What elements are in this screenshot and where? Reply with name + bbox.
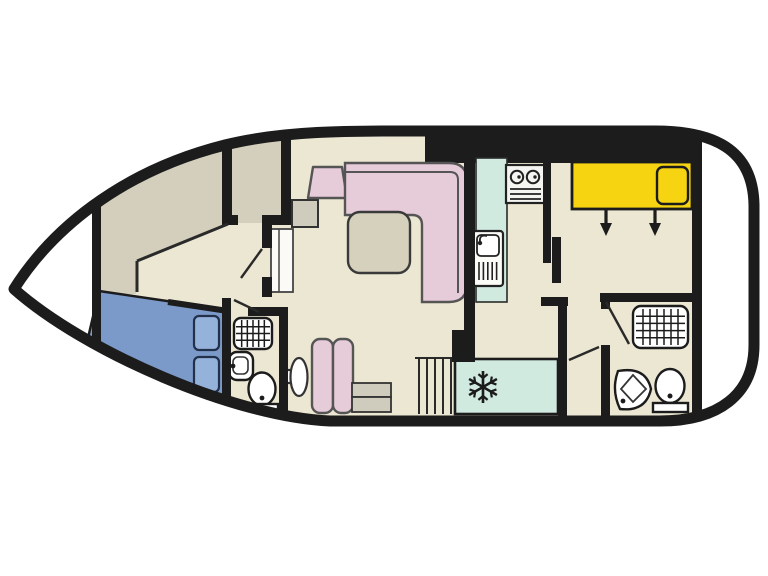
steps-icon <box>352 383 391 397</box>
door-jamb <box>552 237 561 283</box>
bulkhead-front <box>92 206 101 352</box>
fridge <box>455 359 558 414</box>
wall-segment <box>601 345 610 422</box>
wall-segment <box>279 307 288 420</box>
armchair <box>308 167 347 198</box>
wall-segment <box>452 330 465 362</box>
toilet-dot <box>668 394 673 399</box>
wall-segment <box>600 293 702 302</box>
wall-segment <box>222 215 238 225</box>
toilet-icon <box>249 373 276 406</box>
bench-seat <box>333 339 353 413</box>
boat-floor-plan <box>0 0 768 576</box>
pillow-icon <box>657 167 688 204</box>
tap-dot <box>621 399 626 404</box>
door-jamb <box>262 225 272 248</box>
toilet-dot <box>260 396 265 401</box>
tap-dot <box>231 364 236 369</box>
cabinet-step <box>292 200 318 227</box>
door-jamb <box>543 160 551 263</box>
wall-segment <box>464 158 475 362</box>
sink-icon <box>473 231 503 286</box>
shower-icon <box>633 306 688 348</box>
wall-segment <box>262 215 291 225</box>
bench-seat <box>312 339 333 413</box>
bulkhead-stern <box>692 126 702 422</box>
door-jamb <box>262 277 272 297</box>
pillow-icon <box>194 316 219 350</box>
wall-segment <box>558 297 567 419</box>
toilet-base <box>653 403 688 412</box>
wall-segment <box>281 130 291 225</box>
shower-grid-lines <box>236 320 270 347</box>
wardrobe-icon <box>271 229 293 292</box>
pedestal-table <box>291 358 308 396</box>
steps-icon <box>352 397 391 412</box>
floorplan-canvas <box>0 0 768 576</box>
table-icon <box>348 212 410 273</box>
stove-icon <box>506 165 545 203</box>
